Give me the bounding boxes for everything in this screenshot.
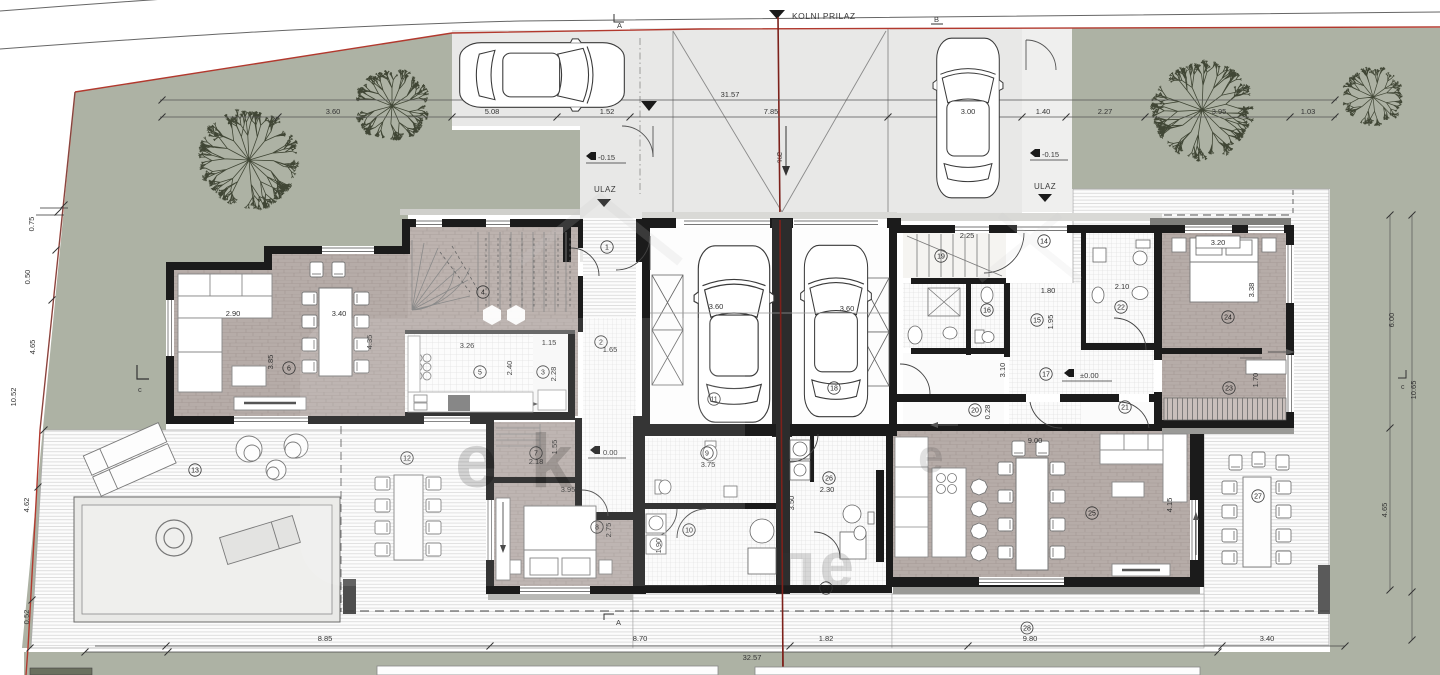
svg-text:18: 18	[830, 386, 838, 393]
svg-text:пе: пе	[778, 531, 858, 600]
svg-text:A: A	[617, 21, 622, 30]
svg-text:19: 19	[937, 254, 945, 261]
svg-text:31.57: 31.57	[721, 90, 740, 99]
svg-text:2.90: 2.90	[226, 309, 241, 318]
svg-text:1.03: 1.03	[1301, 107, 1316, 116]
svg-text:10.52: 10.52	[9, 388, 18, 407]
svg-text:3.60: 3.60	[840, 304, 855, 313]
svg-text:4.65: 4.65	[1380, 503, 1389, 518]
svg-text:32.57: 32.57	[743, 653, 762, 662]
svg-text:1.82: 1.82	[819, 634, 834, 643]
svg-text:5.08: 5.08	[485, 107, 500, 116]
svg-text:21: 21	[1121, 405, 1129, 412]
svg-text:3.60: 3.60	[709, 302, 724, 311]
svg-text:3.40: 3.40	[332, 309, 347, 318]
svg-text:2.30: 2.30	[820, 485, 835, 494]
svg-text:13: 13	[191, 468, 199, 475]
svg-text:1.40: 1.40	[1036, 107, 1051, 116]
svg-text:3.20: 3.20	[1211, 238, 1226, 247]
svg-text:±0.00: ±0.00	[1080, 371, 1099, 380]
svg-text:4.65: 4.65	[28, 340, 37, 355]
svg-text:10.65: 10.65	[1409, 381, 1418, 400]
svg-text:3.60: 3.60	[326, 107, 341, 116]
svg-text:0.28: 0.28	[983, 405, 992, 420]
svg-text:3.10: 3.10	[998, 363, 1007, 378]
svg-text:-0.15: -0.15	[598, 153, 615, 162]
svg-text:3.50: 3.50	[787, 496, 796, 511]
svg-text:26: 26	[825, 476, 833, 483]
svg-text:c: c	[1401, 384, 1405, 391]
svg-text:ULAZ: ULAZ	[1034, 182, 1056, 191]
svg-text:6.00: 6.00	[1387, 313, 1396, 328]
svg-text:27: 27	[1254, 494, 1262, 501]
svg-text:1.70: 1.70	[1251, 373, 1260, 388]
svg-text:B: B	[934, 15, 939, 24]
svg-text:2.10: 2.10	[1115, 282, 1130, 291]
svg-text:1: 1	[605, 245, 609, 252]
svg-text:1.52: 1.52	[600, 107, 615, 116]
svg-text:22: 22	[1117, 305, 1125, 312]
svg-text:0.50: 0.50	[23, 270, 32, 285]
svg-text:0.75: 0.75	[27, 217, 36, 232]
svg-text:KOLNI PRILAZ: KOLNI PRILAZ	[792, 11, 856, 21]
svg-text:3.40: 3.40	[1260, 634, 1275, 643]
svg-text:17: 17	[1042, 372, 1050, 379]
svg-text:1.95: 1.95	[1046, 315, 1055, 330]
svg-text:c: c	[138, 385, 142, 394]
svg-text:A: A	[616, 618, 621, 627]
svg-text:9.80: 9.80	[1023, 634, 1038, 643]
svg-text:3.95: 3.95	[1212, 107, 1227, 116]
svg-text:8.70: 8.70	[633, 634, 648, 643]
svg-text:3.85: 3.85	[266, 355, 275, 370]
svg-text:0.52: 0.52	[22, 610, 31, 625]
svg-text:4.62: 4.62	[22, 498, 31, 513]
svg-text:e k: e k	[455, 419, 579, 504]
svg-text:2.25: 2.25	[960, 231, 975, 240]
svg-text:20: 20	[971, 408, 979, 415]
svg-text:6: 6	[287, 366, 291, 373]
svg-text:28: 28	[1023, 626, 1031, 633]
svg-text:24: 24	[1224, 315, 1232, 322]
svg-text:9.00: 9.00	[1028, 436, 1043, 445]
svg-text:4.15: 4.15	[1165, 498, 1174, 513]
svg-text:2.27: 2.27	[1098, 107, 1113, 116]
svg-text:3.00: 3.00	[961, 107, 976, 116]
svg-text:e: e	[918, 430, 944, 482]
svg-text:4: 4	[481, 290, 485, 297]
svg-text:ULAZ: ULAZ	[594, 185, 616, 194]
svg-text:7.85: 7.85	[764, 107, 779, 116]
svg-text:25: 25	[1088, 511, 1096, 518]
svg-text:1.80: 1.80	[1041, 286, 1056, 295]
svg-text:8.85: 8.85	[318, 634, 333, 643]
svg-text:15: 15	[1033, 318, 1041, 325]
svg-text:16: 16	[983, 308, 991, 315]
svg-text:23: 23	[1225, 386, 1233, 393]
svg-text:-0.15: -0.15	[1042, 150, 1059, 159]
svg-text:3.38: 3.38	[1247, 283, 1256, 298]
